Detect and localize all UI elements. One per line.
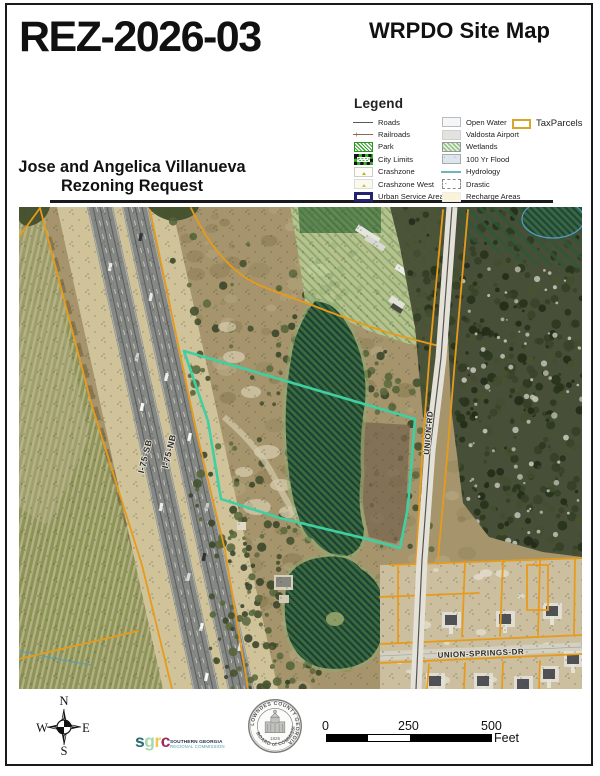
svg-text:N: N — [59, 694, 68, 708]
svg-text:S: S — [61, 744, 68, 758]
svg-text:E: E — [82, 721, 90, 735]
svg-text:W: W — [36, 721, 48, 735]
svg-text:1825: 1825 — [270, 736, 281, 741]
